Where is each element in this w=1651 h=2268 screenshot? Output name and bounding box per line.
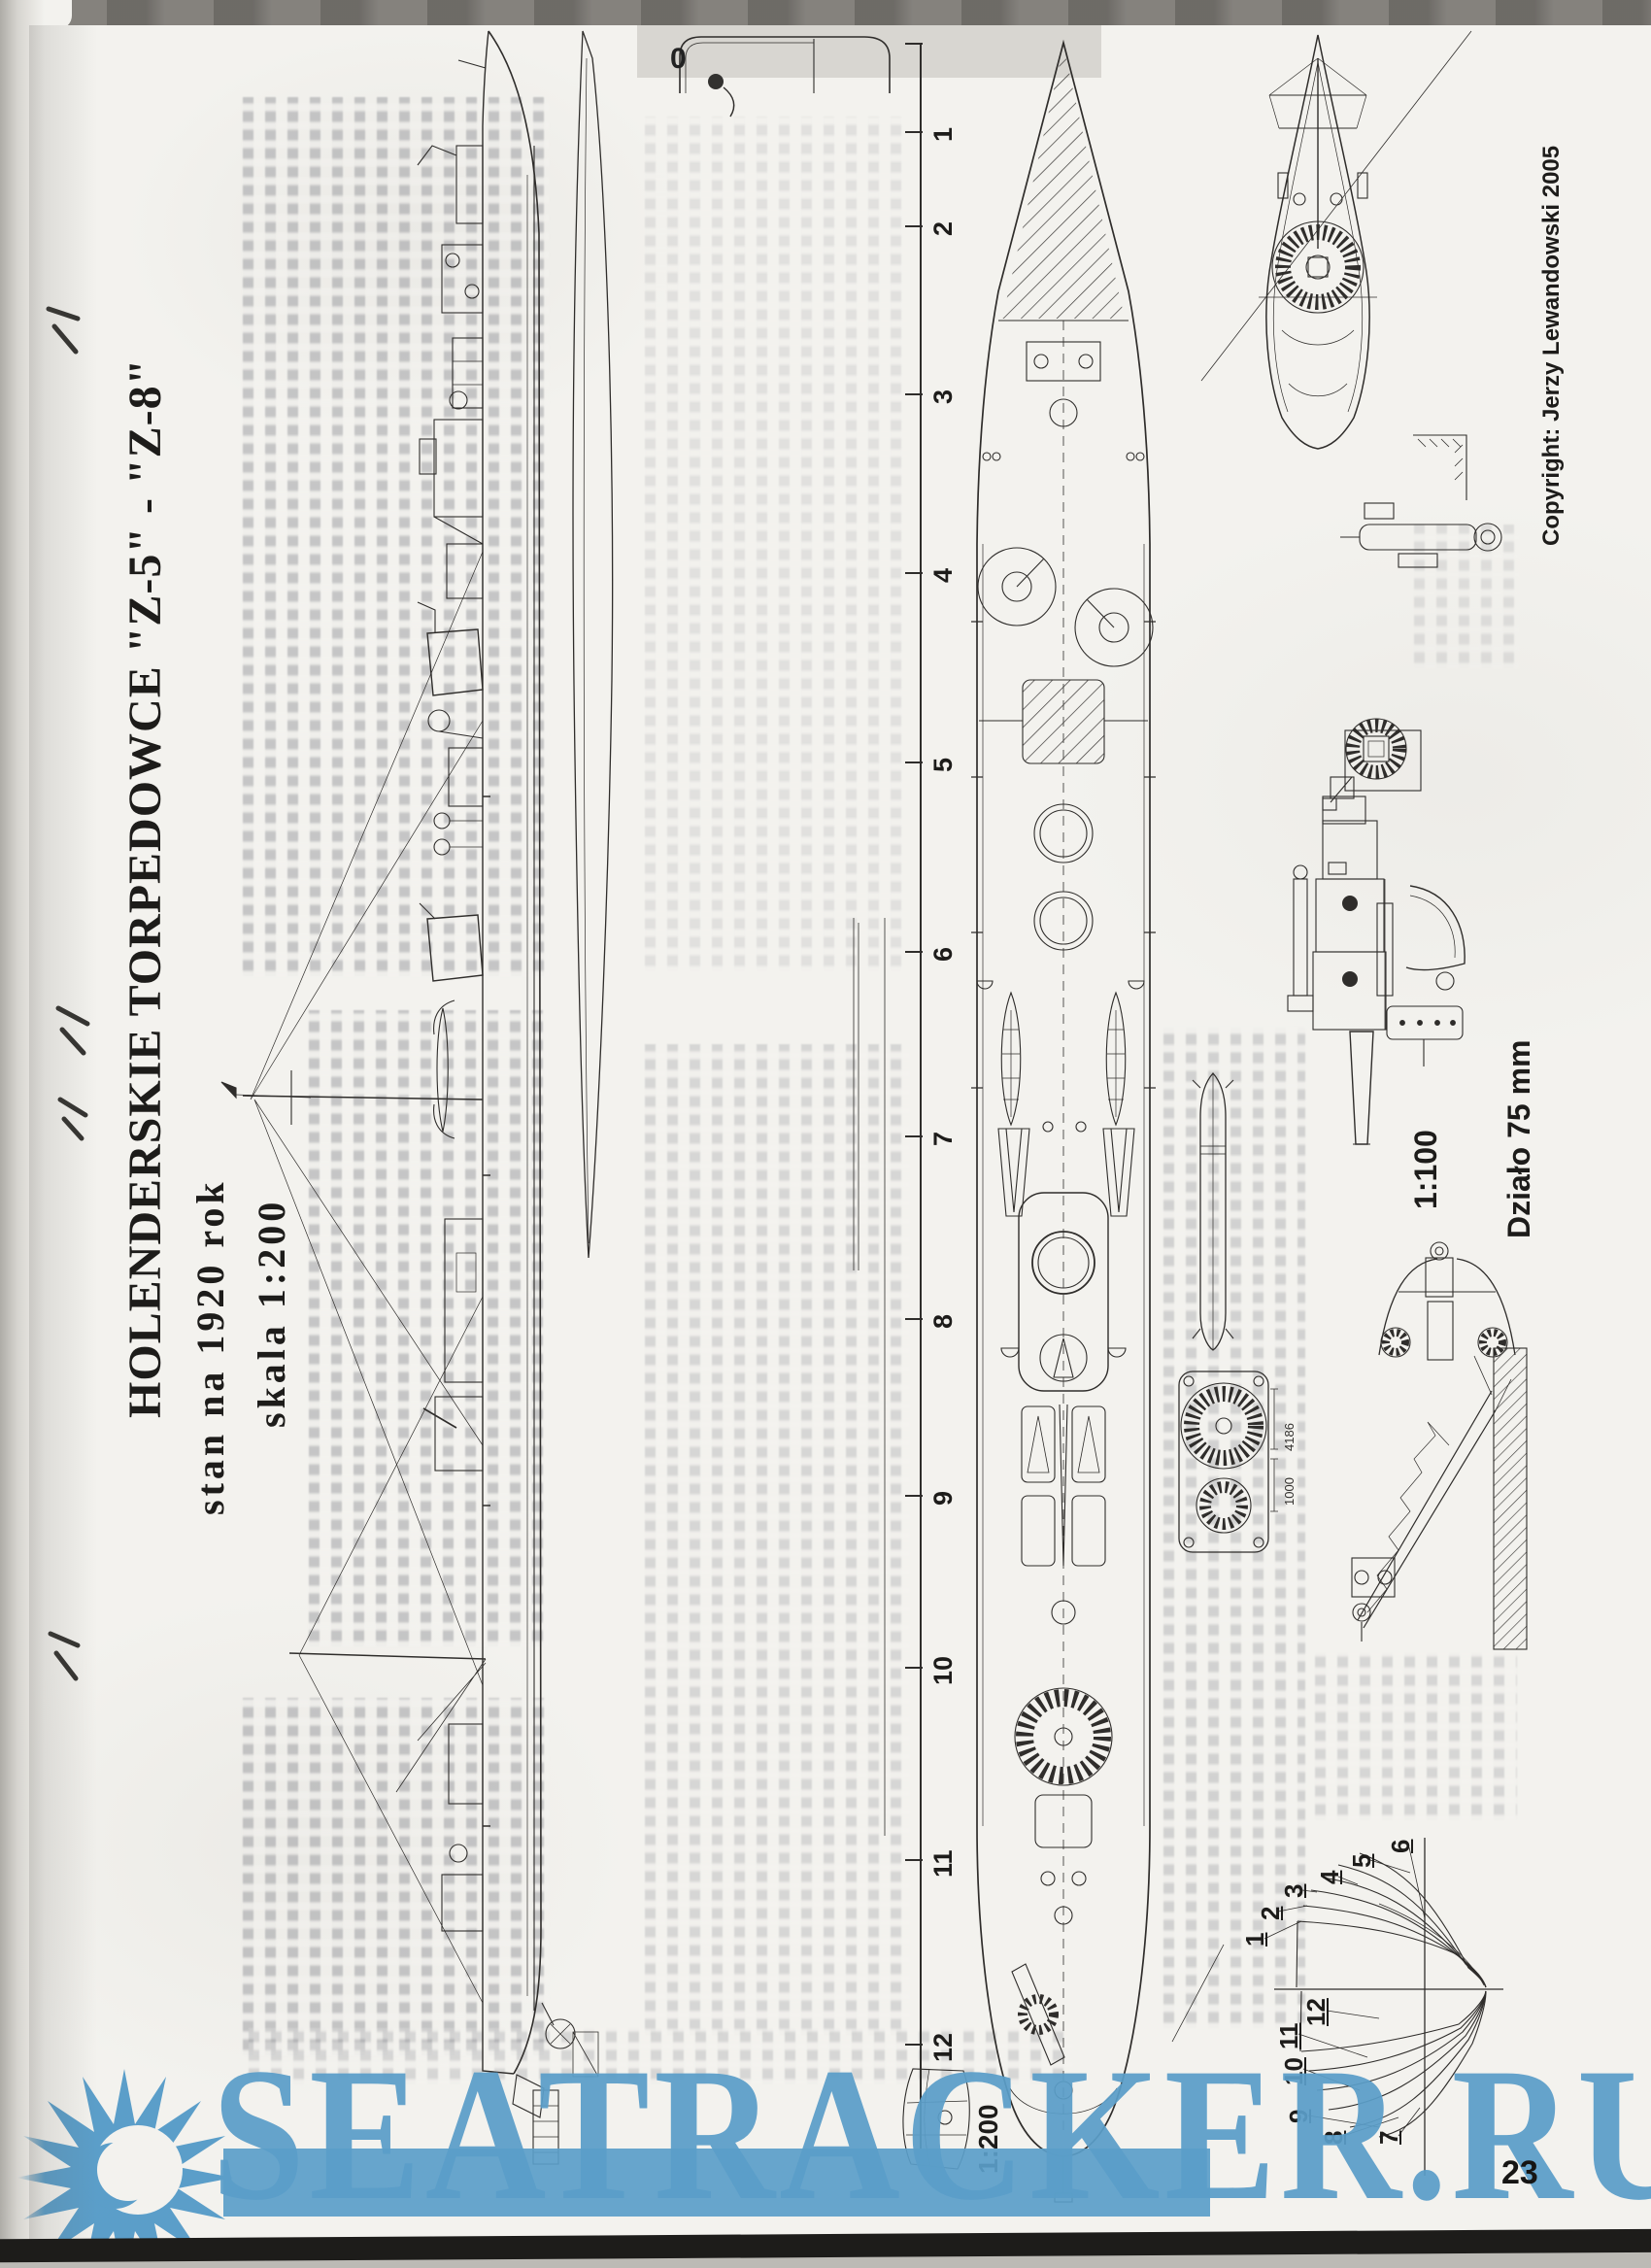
bow-view <box>1259 35 1377 449</box>
ruler-tick-4: 4 <box>928 568 959 583</box>
ruler-tick-1: 1 <box>928 127 959 142</box>
frame-number-4: 4 <box>1315 1871 1345 1884</box>
hull-section-blade <box>573 31 613 1258</box>
zero-marker: 0 <box>670 43 687 76</box>
scale-ruler <box>905 44 923 2149</box>
ruler-tick-9: 9 <box>928 1491 959 1506</box>
watermark-text: SEATRACKER.RU <box>212 2040 1651 2230</box>
ruler-tick-3: 3 <box>928 389 959 404</box>
torpedo-tube-drawing <box>1179 1073 1278 1552</box>
binding-shadow <box>29 25 97 2240</box>
dimension-label-1000: 1000 <box>1282 1477 1297 1506</box>
side-profile-view <box>221 31 598 2164</box>
gun-name-label: Działo 75 mm <box>1501 1039 1537 1238</box>
ruler-tick-11: 11 <box>928 1849 959 1878</box>
torn-top-edge-texture <box>0 0 1651 25</box>
cropped-stern-shape <box>680 37 890 117</box>
frame-number-2: 2 <box>1256 1907 1286 1920</box>
copyright-note: Copyright: Jerzy Lewandowski 2005 <box>1538 146 1566 546</box>
page-title: HOLENDERSKIE TORPEDOWCE "Z-5" - "Z-8" <box>118 358 172 1418</box>
gun-top-detail <box>1340 435 1501 567</box>
scale-note: skala 1:200 <box>249 1199 294 1428</box>
gun-scale-label: 1:100 <box>1408 1130 1444 1209</box>
gun-side-elevation <box>1288 777 1465 1144</box>
deck-plan-view <box>971 43 1156 2202</box>
ruler-tick-10: 10 <box>928 1656 959 1685</box>
leader-lines <box>1172 31 1471 2042</box>
gun-rear-view <box>1379 1242 1515 1360</box>
ruler-tick-7: 7 <box>928 1132 959 1146</box>
ruler-tick-5: 5 <box>928 758 959 772</box>
ruler-tick-2: 2 <box>928 221 959 236</box>
frame-number-1: 1 <box>1240 1933 1270 1946</box>
page-number: 23 <box>1501 2154 1538 2192</box>
frame-number-6: 6 <box>1386 1840 1416 1853</box>
page-subtitle: stan na 1920 rok <box>187 1178 233 1515</box>
dimension-lines <box>854 918 885 1836</box>
frame-number-5: 5 <box>1347 1854 1377 1868</box>
frame-number-3: 3 <box>1279 1884 1309 1898</box>
ruler-tick-8: 8 <box>928 1314 959 1329</box>
ship-plan-drawings <box>0 0 1651 2268</box>
frame-number-12: 12 <box>1301 1998 1331 2026</box>
dimension-label-4186: 4186 <box>1282 1423 1297 1451</box>
ruler-tick-6: 6 <box>928 947 959 962</box>
scanned-magazine-page: HOLENDERSKIE TORPEDOWCE "Z-5" - "Z-8" st… <box>0 0 1651 2268</box>
davit-boom-drawing <box>1352 1348 1527 1649</box>
